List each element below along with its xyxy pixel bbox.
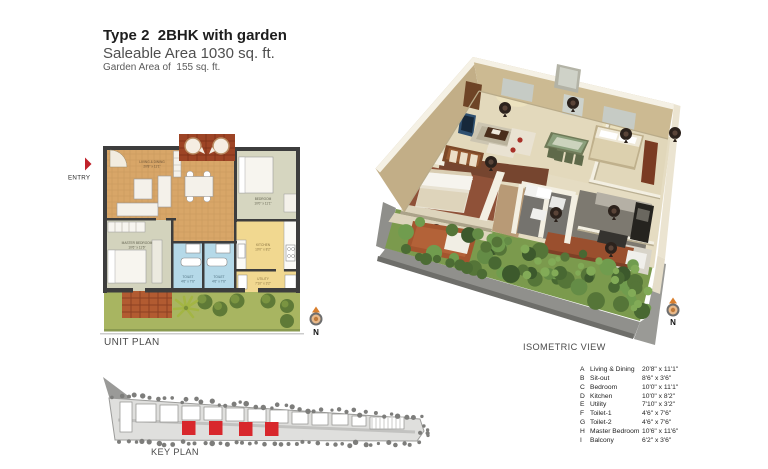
- svg-text:10'0" x 11'1": 10'0" x 11'1": [254, 202, 271, 206]
- svg-text:4'6" x 7'6": 4'6" x 7'6": [212, 280, 226, 284]
- svg-text:KITCHEN: KITCHEN: [256, 243, 271, 247]
- svg-text:4'6" x 7'6": 4'6" x 7'6": [181, 280, 195, 284]
- svg-text:BEDROOM: BEDROOM: [255, 197, 272, 201]
- svg-text:MASTER BEDROOM: MASTER BEDROOM: [122, 241, 153, 245]
- svg-text:20'8" x 11'1": 20'8" x 11'1": [143, 165, 160, 169]
- svg-text:ENTRY: ENTRY: [68, 175, 90, 182]
- svg-text:TOILET: TOILET: [213, 275, 224, 279]
- svg-text:N: N: [313, 328, 319, 337]
- svg-text:10'0" x 8'2": 10'0" x 8'2": [255, 248, 271, 252]
- svg-text:TOILET: TOILET: [182, 275, 193, 279]
- svg-text:7'10" x 3'2": 7'10" x 3'2": [255, 282, 271, 286]
- svg-text:N: N: [670, 318, 676, 327]
- svg-text:UTILITY: UTILITY: [257, 277, 270, 281]
- svg-text:10'6" x 11'6": 10'6" x 11'6": [128, 246, 145, 250]
- svg-text:LIVING & DINING: LIVING & DINING: [139, 160, 165, 164]
